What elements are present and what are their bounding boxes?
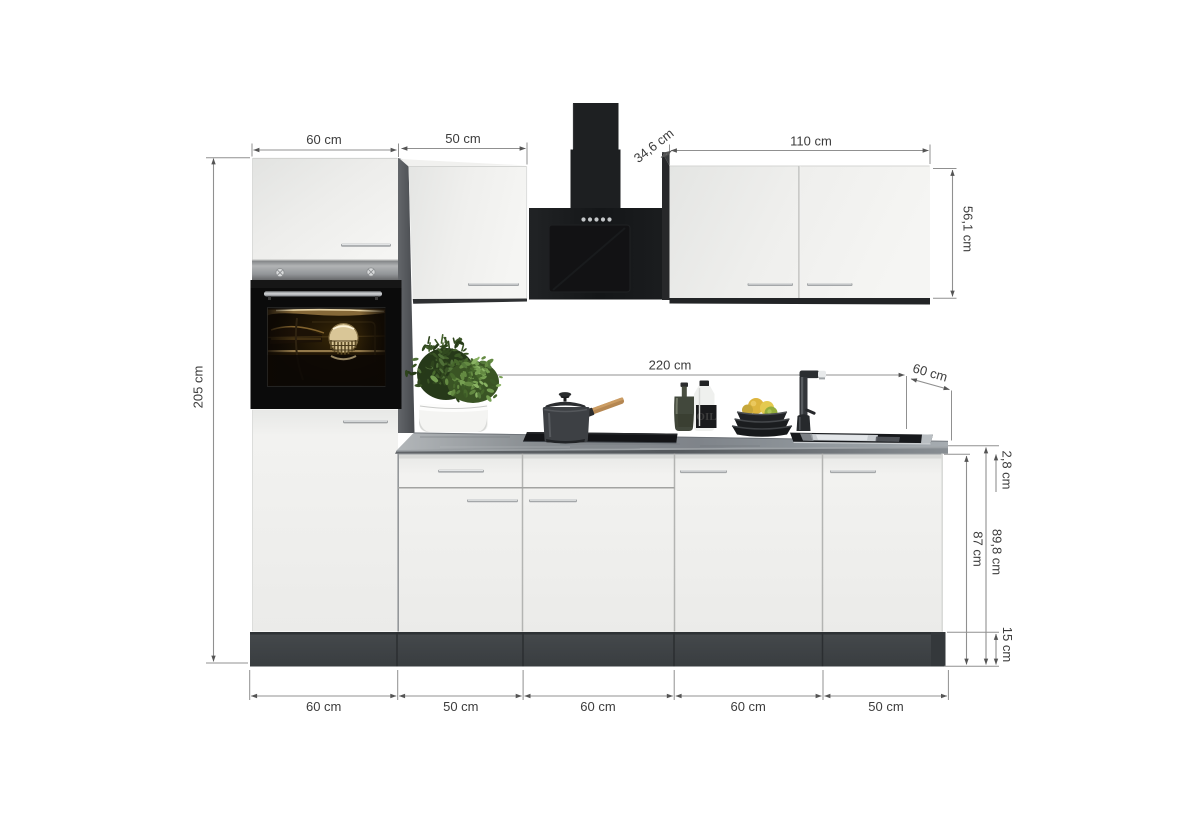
svg-text:87 cm: 87 cm xyxy=(971,531,986,566)
svg-text:2,8 cm: 2,8 cm xyxy=(1000,450,1015,489)
svg-text:60 cm: 60 cm xyxy=(306,132,341,147)
svg-text:50 cm: 50 cm xyxy=(445,131,480,146)
svg-text:220 cm: 220 cm xyxy=(649,358,692,373)
svg-text:60 cm: 60 cm xyxy=(580,699,615,714)
svg-text:50 cm: 50 cm xyxy=(443,699,478,714)
svg-text:60 cm: 60 cm xyxy=(306,699,341,714)
svg-text:15 cm: 15 cm xyxy=(1000,627,1015,662)
svg-text:110 cm: 110 cm xyxy=(790,134,832,149)
svg-text:205 cm: 205 cm xyxy=(191,366,206,409)
svg-text:60 cm: 60 cm xyxy=(730,699,765,714)
svg-text:56,1 cm: 56,1 cm xyxy=(961,206,976,252)
svg-text:50 cm: 50 cm xyxy=(868,699,903,714)
svg-text:89,8 cm: 89,8 cm xyxy=(990,529,1005,575)
